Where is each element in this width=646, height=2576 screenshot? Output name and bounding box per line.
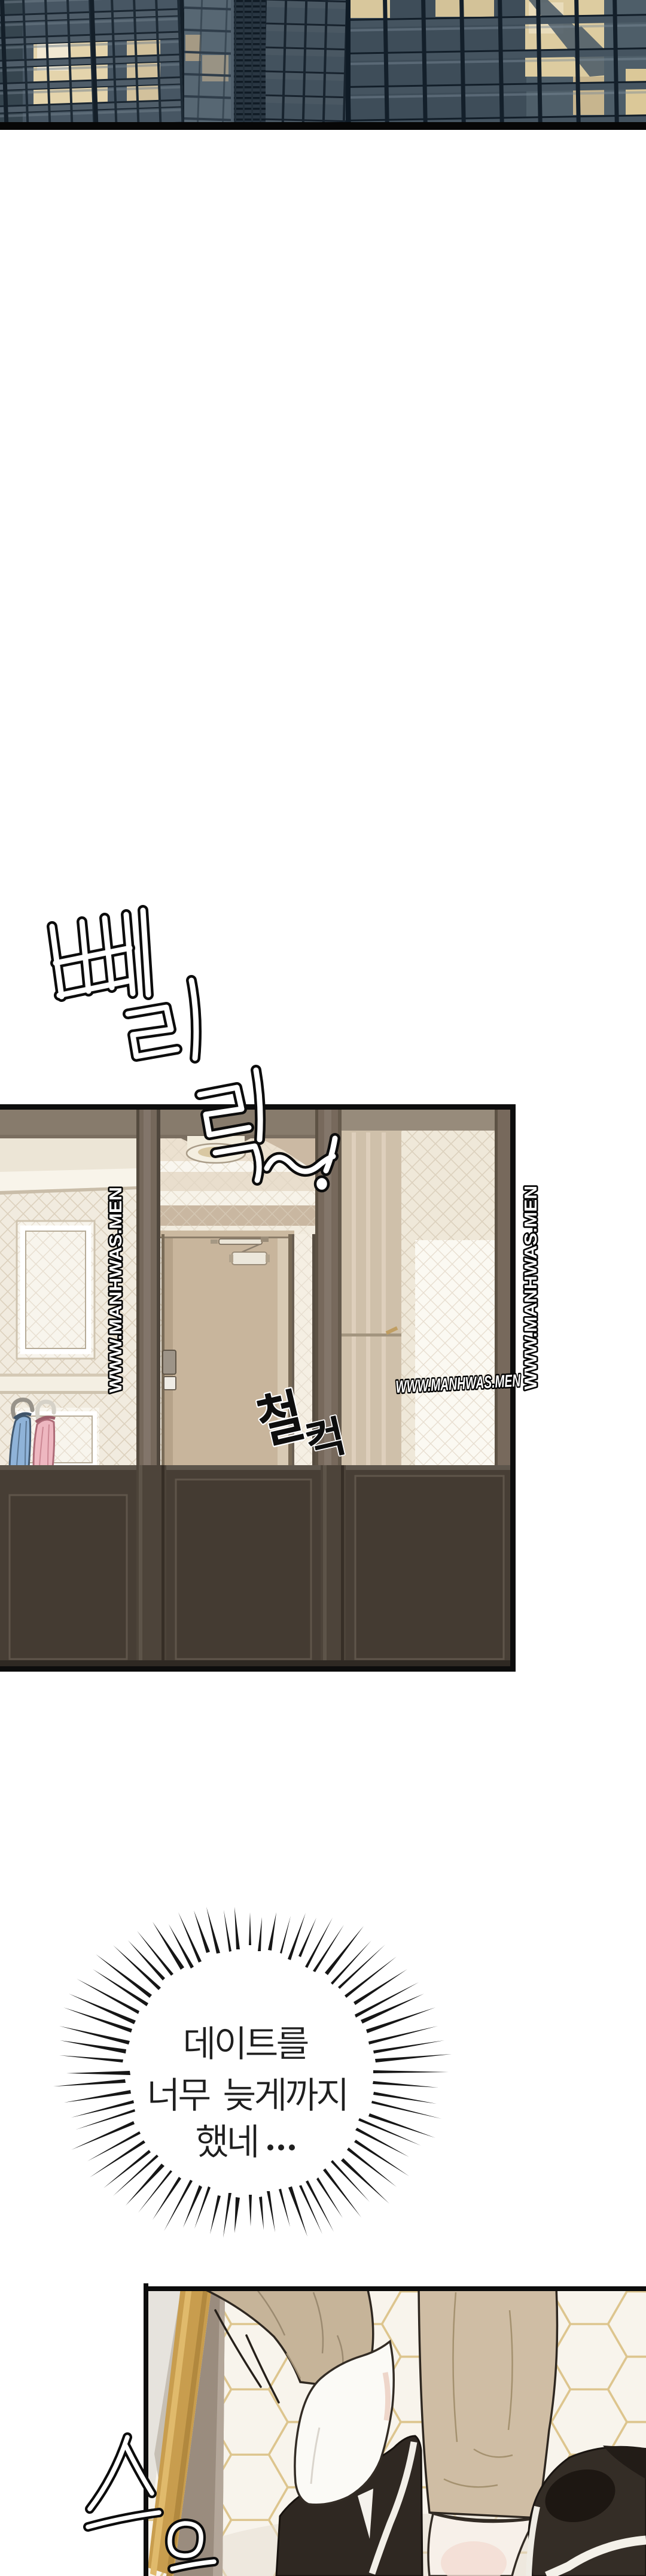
svg-text:WWW.MANHWAS.MEN: WWW.MANHWAS.MEN [522,1186,541,1390]
svg-text:WWW.MANHWAS.MEN: WWW.MANHWAS.MEN [395,1371,522,1397]
